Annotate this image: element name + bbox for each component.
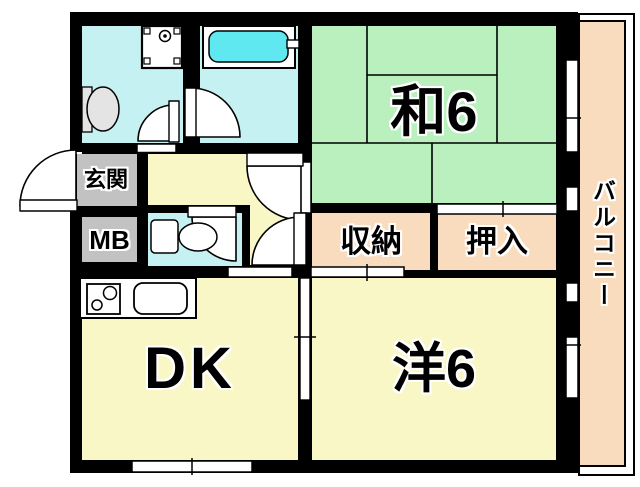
room-dk <box>82 278 298 460</box>
room-storage <box>312 213 430 270</box>
room-bathroom <box>200 26 298 143</box>
room-balcony: バルコニー <box>580 20 626 467</box>
room-washroom <box>82 26 183 143</box>
balcony-label: バルコニー <box>591 179 614 309</box>
entrance-door-arc <box>20 150 76 206</box>
room-washitsu <box>312 26 556 203</box>
balcony-outline: バルコニー <box>578 13 635 476</box>
room-toilet <box>148 213 242 266</box>
room-closet <box>438 213 556 270</box>
floorplan-canvas: バルコニー <box>0 0 640 487</box>
room-genkan <box>75 154 137 206</box>
room-meter-box <box>82 217 137 262</box>
room-western <box>312 278 556 460</box>
